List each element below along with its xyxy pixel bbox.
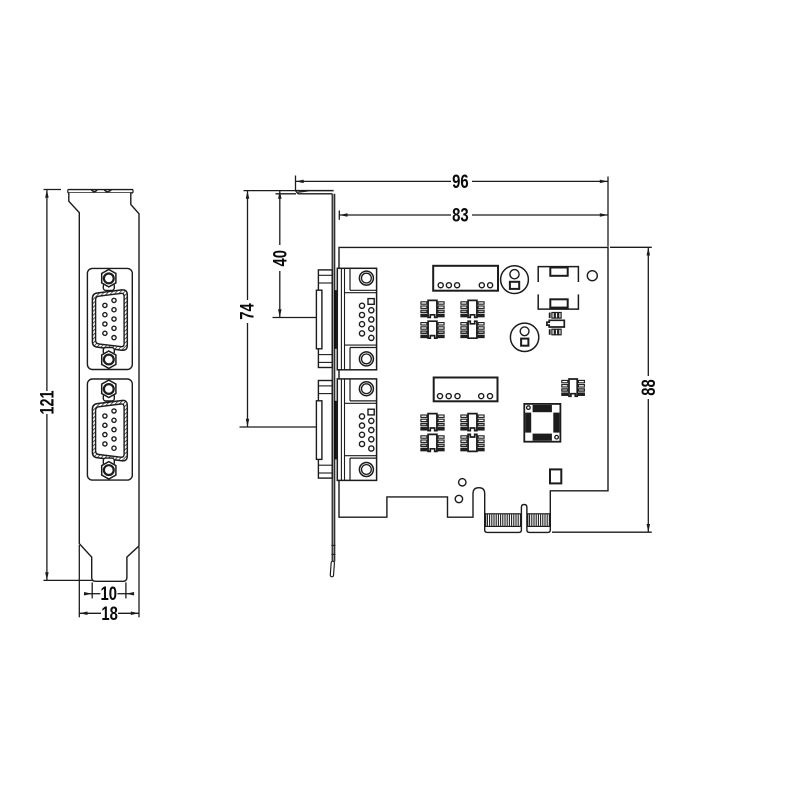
svg-text:96: 96 — [452, 172, 469, 193]
svg-text:83: 83 — [452, 206, 469, 227]
svg-text:74: 74 — [238, 303, 259, 320]
svg-text:121: 121 — [38, 390, 59, 414]
svg-text:10: 10 — [101, 584, 118, 605]
svg-text:88: 88 — [639, 379, 660, 396]
svg-text:18: 18 — [101, 604, 118, 625]
svg-text:40: 40 — [270, 250, 291, 267]
